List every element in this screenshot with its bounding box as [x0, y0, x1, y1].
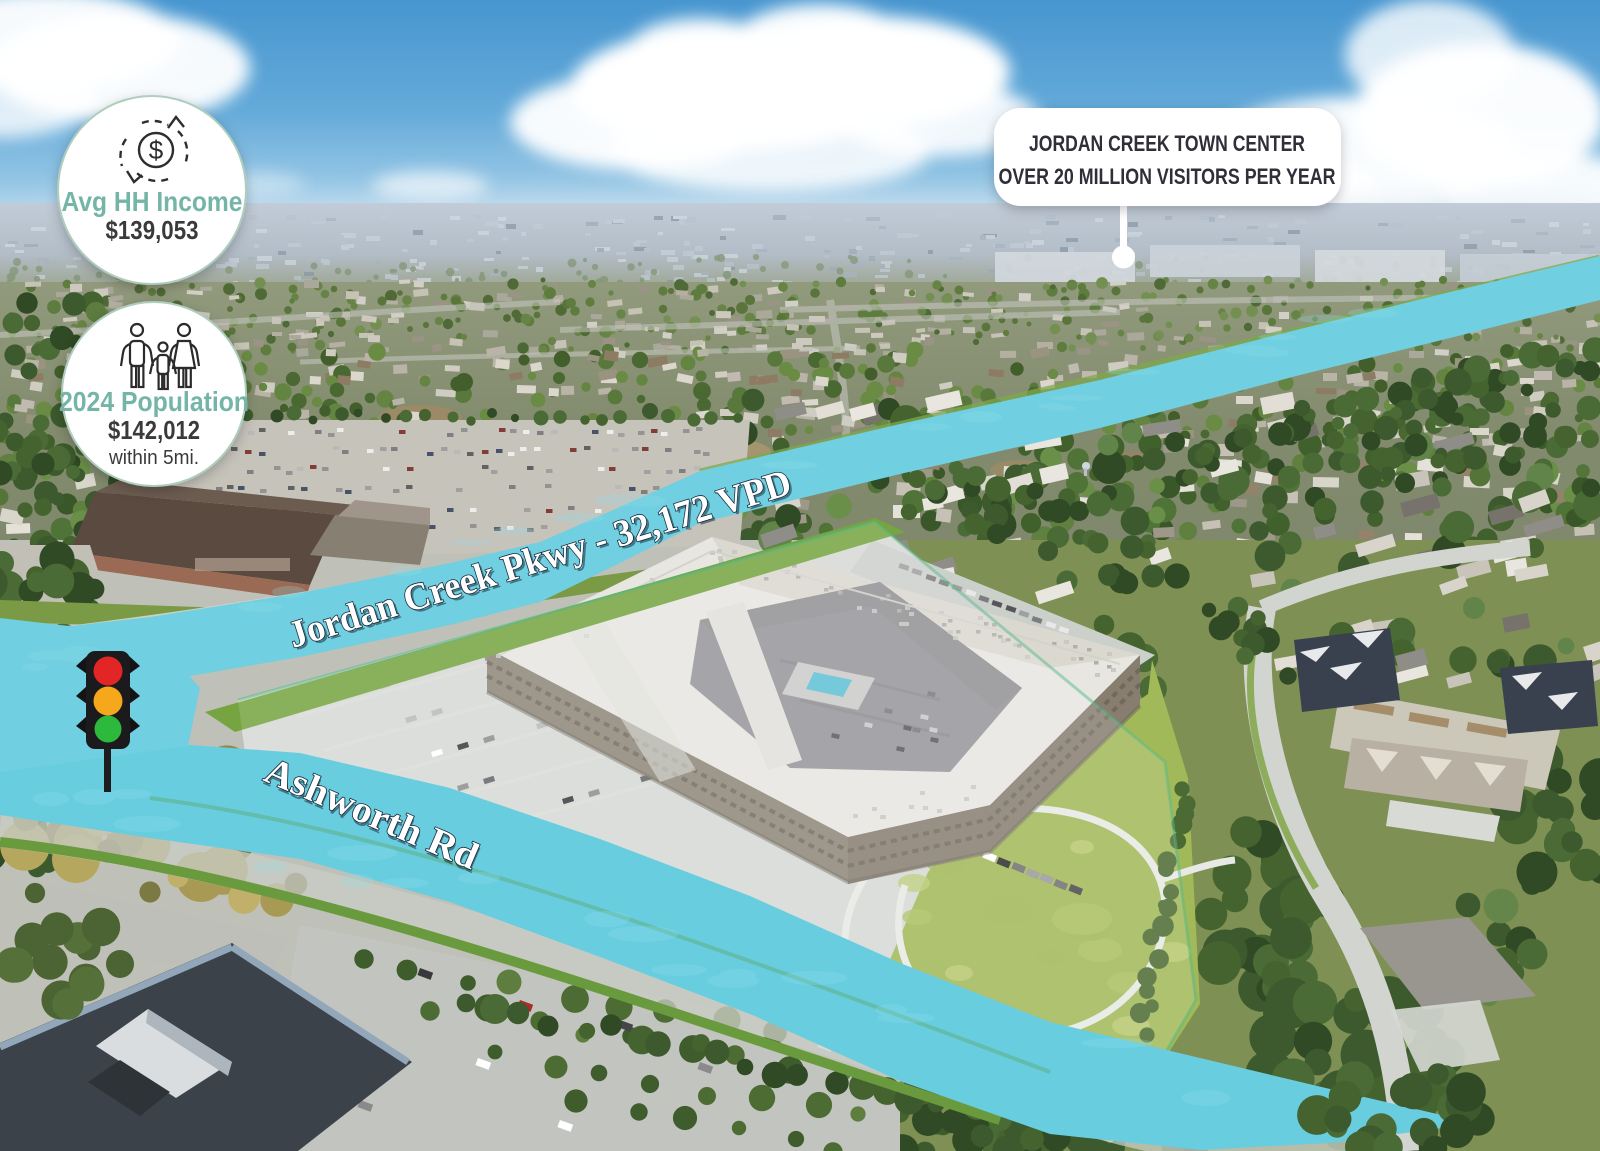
svg-text:$: $	[149, 135, 164, 165]
svg-text:OVER 20 MILLION VISITORS PER Y: OVER 20 MILLION VISITORS PER YEAR	[999, 164, 1336, 189]
svg-text:within 5mi.: within 5mi.	[108, 447, 199, 469]
svg-text:2024 Population: 2024 Population	[59, 386, 249, 417]
svg-text:$139,053: $139,053	[106, 215, 199, 245]
svg-text:JORDAN CREEK TOWN CENTER: JORDAN CREEK TOWN CENTER	[1029, 131, 1305, 156]
svg-text:Avg HH Income: Avg HH Income	[62, 186, 243, 217]
svg-text:$142,012: $142,012	[108, 415, 200, 445]
